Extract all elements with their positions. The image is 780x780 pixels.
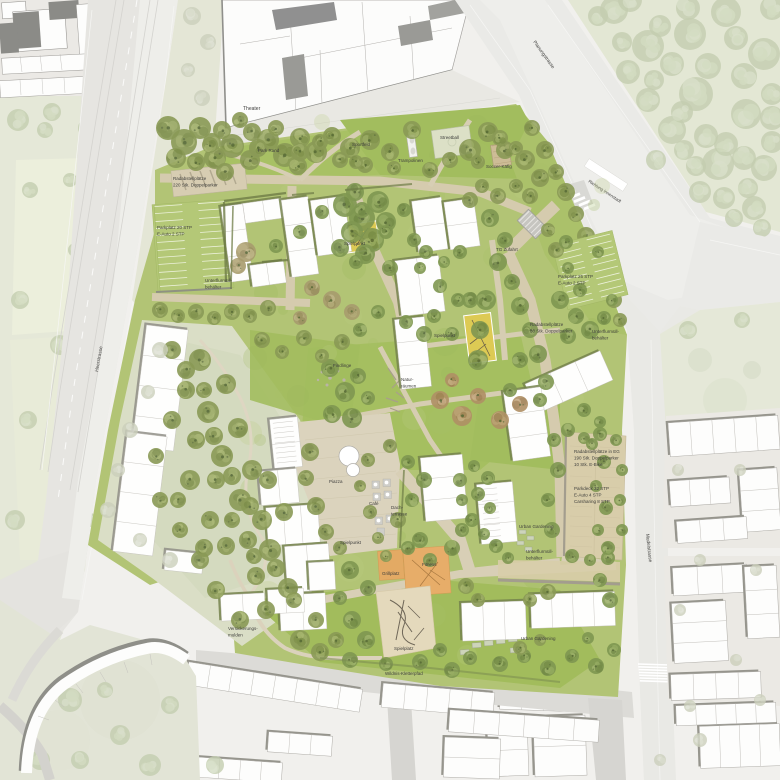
svg-text:Spielpunkt: Spielpunkt (340, 540, 362, 545)
svg-text:räumen: räumen (401, 384, 417, 389)
svg-text:Spielpunkt: Spielpunkt (344, 241, 366, 246)
svg-text:Piazza: Piazza (329, 479, 343, 484)
svg-text:Park Rand: Park Rand (258, 148, 280, 153)
svg-text:Unterflurmüll-: Unterflurmüll- (205, 278, 233, 283)
svg-text:30 Stk. Doppelparker: 30 Stk. Doppelparker (530, 329, 573, 334)
svg-text:Findlinge: Findlinge (333, 363, 352, 368)
svg-text:Radabstellplätze in EG: Radabstellplätze in EG (574, 449, 620, 454)
svg-text:TG Zufahrt: TG Zufahrt (496, 247, 519, 252)
svg-text:Wildnis-Kletterpfad: Wildnis-Kletterpfad (385, 671, 423, 676)
svg-text:Urban Gardening: Urban Gardening (519, 524, 554, 529)
svg-text:Parkdeck 32 STP: Parkdeck 32 STP (574, 486, 609, 491)
svg-text:Trampolinen: Trampolinen (398, 158, 423, 163)
svg-text:E-Auto 4 STP: E-Auto 4 STP (574, 493, 602, 498)
svg-text:terrasse: terrasse (391, 512, 408, 517)
svg-text:Theater: Theater (243, 106, 261, 112)
svg-text:Unterflurmüll-: Unterflurmüll- (526, 549, 554, 554)
svg-text:Radabstellplätze: Radabstellplätze (173, 176, 207, 181)
svg-text:behälter: behälter (526, 556, 543, 561)
svg-text:E-Auto 2 STP: E-Auto 2 STP (558, 281, 586, 286)
svg-text:Natur-: Natur- (401, 377, 414, 382)
svg-text:Spielpunkt: Spielpunkt (434, 333, 456, 338)
svg-text:Radabstellplätze: Radabstellplätze (530, 322, 564, 327)
svg-text:Soccer-Käfig: Soccer-Käfig (486, 164, 512, 169)
svg-text:Sportfeld: Sportfeld (352, 142, 371, 147)
svg-text:behälter: behälter (592, 336, 609, 341)
svg-text:190 Stk. Doppelparker: 190 Stk. Doppelparker (574, 456, 619, 461)
svg-text:220 Stk. Doppelparker: 220 Stk. Doppelparker (173, 183, 218, 188)
svg-text:Café: Café (369, 501, 379, 506)
svg-text:Parkplatz 25 STP: Parkplatz 25 STP (558, 274, 593, 279)
svg-text:Dach-: Dach- (391, 505, 404, 510)
svg-text:10 Stk. E-Bike: 10 Stk. E-Bike (574, 462, 603, 467)
svg-text:behälter: behälter (205, 285, 222, 290)
svg-text:Streetball: Streetball (440, 135, 459, 140)
svg-text:Spielplatz: Spielplatz (394, 646, 414, 651)
svg-text:Unterflurmüll-: Unterflurmüll- (592, 329, 620, 334)
svg-text:Grillplatz: Grillplatz (382, 571, 400, 576)
svg-text:Carsharing 8 STP: Carsharing 8 STP (574, 499, 610, 504)
svg-text:Parkplatz 20 STP: Parkplatz 20 STP (157, 225, 192, 230)
svg-text:Urban Gardening: Urban Gardening (521, 636, 556, 641)
svg-text:mulden: mulden (228, 633, 243, 638)
svg-text:Fitness: Fitness (422, 562, 437, 567)
svg-text:E-Auto 2 STP: E-Auto 2 STP (157, 232, 185, 237)
svg-text:Versickerungs-: Versickerungs- (228, 626, 258, 631)
